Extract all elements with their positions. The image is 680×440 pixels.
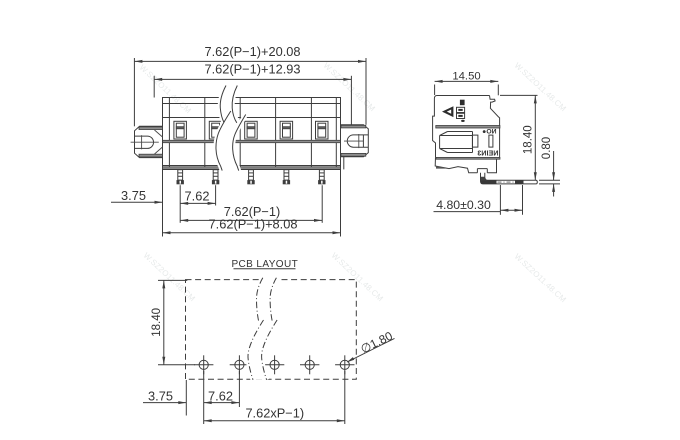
- svg-text:W.SZ2O11.48.CM: W.SZ2O11.48.CM: [142, 251, 197, 303]
- svg-text:18.40: 18.40: [151, 308, 163, 337]
- svg-text:14.50: 14.50: [452, 70, 480, 82]
- svg-text:7.62(P−1)+20.08: 7.62(P−1)+20.08: [204, 44, 300, 59]
- svg-text:18.40: 18.40: [523, 125, 535, 154]
- svg-text:W.SZ2O11.48.CM: W.SZ2O11.48.CM: [513, 61, 568, 113]
- svg-text:7.62: 7.62: [185, 188, 210, 203]
- svg-text:4.80±0.30: 4.80±0.30: [436, 198, 491, 212]
- svg-text:NEIN3: NEIN3: [477, 148, 498, 157]
- svg-text:3.75: 3.75: [148, 389, 173, 404]
- svg-text:NO●: NO●: [482, 128, 496, 135]
- svg-text:W.SZ2O11.48.CM: W.SZ2O11.48.CM: [322, 61, 377, 113]
- svg-text:W.SZ2O11.48.CM: W.SZ2O11.48.CM: [330, 251, 385, 303]
- svg-text:7.62(P−1)+12.93: 7.62(P−1)+12.93: [204, 62, 300, 77]
- svg-text:∅1.80: ∅1.80: [358, 329, 395, 357]
- svg-text:7.62xP−1): 7.62xP−1): [245, 406, 304, 421]
- svg-text:7.62: 7.62: [208, 388, 233, 403]
- svg-text:3.75: 3.75: [121, 188, 146, 203]
- svg-text:W.SZ2O11.48.CM: W.SZ2O11.48.CM: [138, 63, 193, 115]
- svg-text:7.62(P−1)+8.08: 7.62(P−1)+8.08: [209, 217, 298, 232]
- svg-text:0.80: 0.80: [541, 137, 553, 159]
- svg-text:PCB LAYOUT: PCB LAYOUT: [231, 259, 298, 270]
- svg-text:W.SZ2O11.48.CM: W.SZ2O11.48.CM: [513, 252, 568, 304]
